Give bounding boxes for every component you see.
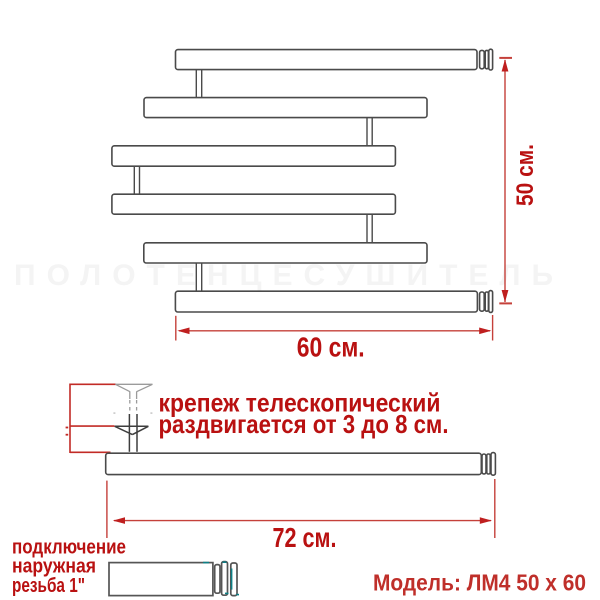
svg-text:50 см.: 50 см. bbox=[512, 144, 539, 206]
svg-text:резьба 1": резьба 1" bbox=[12, 575, 85, 597]
svg-text:раздвигается от 3 до 8 см.: раздвигается от 3 до 8 см. bbox=[159, 409, 449, 439]
svg-text:ПОЛОТЕНЦЕСУШИТЕЛЬ: ПОЛОТЕНЦЕСУШИТЕЛЬ bbox=[14, 259, 564, 292]
svg-text:60 см.: 60 см. bbox=[297, 332, 365, 363]
svg-text:72 см.: 72 см. bbox=[273, 522, 337, 553]
svg-text:Модель: ЛМ4 50 х 60: Модель: ЛМ4 50 х 60 bbox=[373, 570, 586, 596]
